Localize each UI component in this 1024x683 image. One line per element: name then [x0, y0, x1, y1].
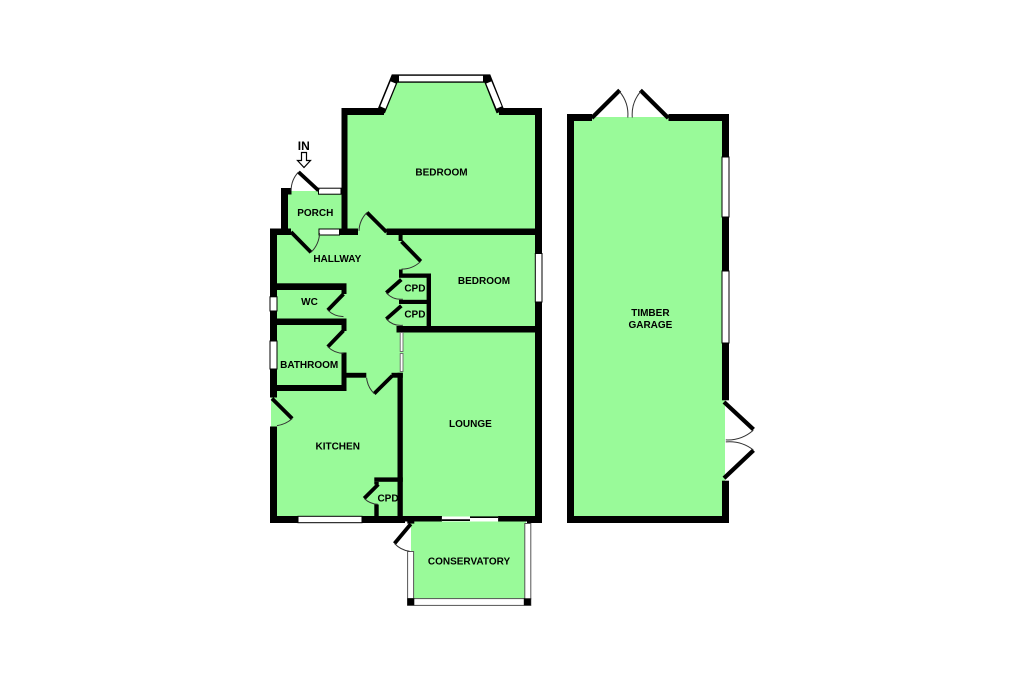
svg-text:WC: WC [301, 297, 318, 308]
svg-text:GARAGE: GARAGE [628, 320, 672, 331]
svg-text:LOUNGE: LOUNGE [449, 419, 492, 430]
svg-text:KITCHEN: KITCHEN [315, 442, 359, 453]
svg-text:CONSERVATORY: CONSERVATORY [428, 556, 511, 567]
svg-text:HALLWAY: HALLWAY [313, 254, 361, 265]
svg-text:CPD: CPD [377, 493, 398, 504]
svg-text:TIMBER: TIMBER [631, 308, 670, 319]
svg-text:BEDROOM: BEDROOM [415, 168, 467, 179]
svg-text:CPD: CPD [404, 284, 425, 295]
svg-text:CPD: CPD [404, 310, 425, 321]
svg-text:PORCH: PORCH [297, 208, 333, 219]
svg-text:IN: IN [298, 139, 310, 153]
svg-text:BEDROOM: BEDROOM [458, 276, 510, 287]
svg-text:BATHROOM: BATHROOM [280, 360, 338, 371]
